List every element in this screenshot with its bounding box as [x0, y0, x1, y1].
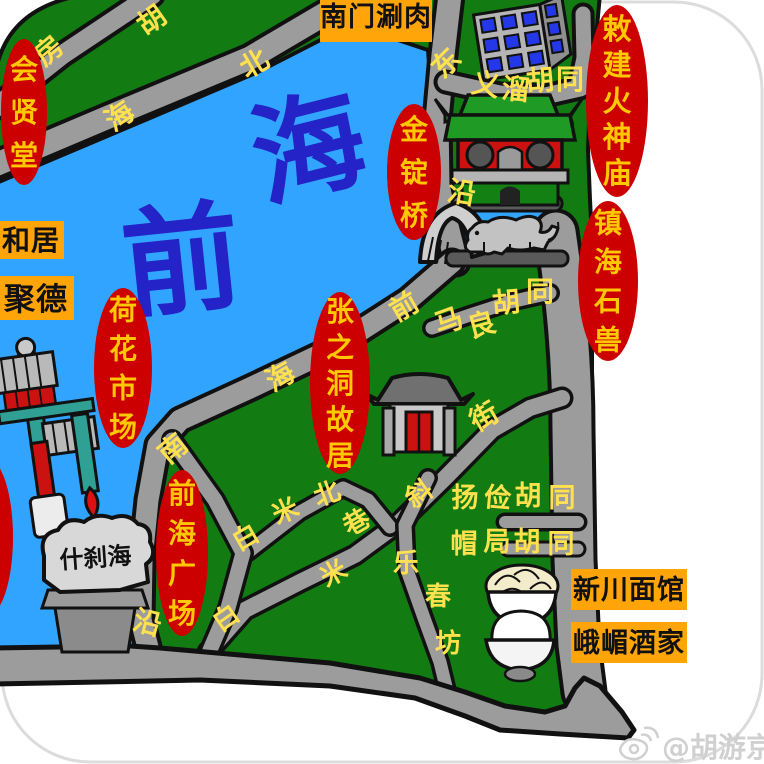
label-text: 聚德: [3, 282, 68, 318]
badge-char: 金: [399, 113, 429, 146]
street-label-char: 胡: [525, 63, 556, 98]
badge-char: 海: [594, 245, 622, 278]
map-canvas: 什刹海 海前 胡房北海东义溜胡同沿前海马良胡同街南沿白米北巷白米斜乐春坊扬俭胡同…: [0, 0, 764, 764]
badge-char: 花: [109, 332, 137, 365]
zhenhaishishou-badge: 镇海石兽: [578, 201, 638, 361]
badge-char: 堂: [10, 139, 38, 172]
badge-char: 神: [602, 120, 631, 154]
rock-inscription: 什刹海: [59, 542, 133, 575]
badge-char: 张: [326, 295, 354, 328]
badge-char: 兽: [594, 323, 622, 356]
badge-char: 场: [109, 410, 137, 443]
huoshenmiao-badge: 敕建火神庙: [586, 5, 648, 197]
badge-char: 洞: [326, 367, 354, 400]
badge-char: 居: [326, 439, 354, 472]
street-label-char: 乐: [393, 549, 419, 579]
label-text: 新川面馆: [573, 574, 685, 606]
street-label-char: 帽: [451, 529, 478, 560]
hejv-label: 和居: [0, 221, 64, 259]
label-text: 峨嵋酒家: [573, 627, 685, 659]
jindingqiao-badge: 金锭桥: [387, 104, 441, 240]
nanmenshuanrou-label: 南门涮肉: [320, 0, 432, 42]
badge-char: 会: [10, 53, 38, 86]
street-label-char: 胡: [491, 285, 522, 320]
badge-char: 前: [168, 477, 196, 510]
qianhaiguangchang-badge: 前海广场: [156, 470, 208, 636]
badge-char: 故: [326, 403, 354, 436]
hehuashichang-badge: 荷花市场: [94, 288, 152, 448]
street-label-char: 局: [484, 527, 511, 558]
badge-char: 石: [593, 284, 622, 317]
badge-char: 建: [602, 48, 631, 82]
jude-label: 聚德: [0, 276, 74, 320]
badge-char: 之: [326, 331, 354, 364]
street-label-char: 同: [548, 529, 575, 560]
badge-char: 海: [168, 517, 196, 550]
street-label-char: 胡: [515, 481, 542, 512]
badge-char: 贤: [10, 96, 38, 129]
label-text: 南门涮肉: [320, 2, 432, 33]
street-label-char: 同: [526, 275, 554, 308]
badge-char: 场: [168, 597, 196, 630]
xinchuan-noodles-label: 新川面馆: [571, 569, 687, 610]
badge-char: 桥: [400, 199, 428, 232]
street-label-char: 胡: [514, 527, 541, 558]
badge-char: 广: [168, 557, 196, 590]
badge-char: 火: [602, 84, 631, 118]
badge-char: 荷: [109, 293, 137, 326]
badge-char: 敕: [602, 12, 631, 46]
street-label-char: 坊: [435, 628, 461, 659]
channel-bank-south: [446, 251, 568, 266]
badge-char: 镇: [594, 206, 622, 239]
street-label-char: 扬: [452, 483, 479, 514]
qianhai-hutong-map: 什刹海 海前 胡房北海东义溜胡同沿前海马良胡同街南沿白米北巷白米斜乐春坊扬俭胡同…: [0, 0, 764, 764]
badge-char: 锭: [400, 156, 428, 189]
street-label-char: 同: [556, 63, 584, 96]
badge-char: 庙: [602, 156, 631, 190]
watermark-handle: @胡游京城: [662, 731, 764, 764]
street-label-char: 俭: [483, 481, 513, 515]
label-text: 和居: [2, 224, 60, 257]
street-label-char: 同: [549, 483, 576, 514]
huixiantang-badge: 会贤堂: [1, 39, 47, 185]
street-label-char: 春: [425, 582, 451, 612]
zhangzhidong-badge: 张之洞故居: [310, 292, 370, 474]
emei-restaurant-label: 峨嵋酒家: [571, 622, 687, 663]
street-label-char: 义: [469, 66, 502, 103]
badge-char: 市: [109, 371, 137, 404]
street-label-char: 沿: [445, 174, 478, 211]
